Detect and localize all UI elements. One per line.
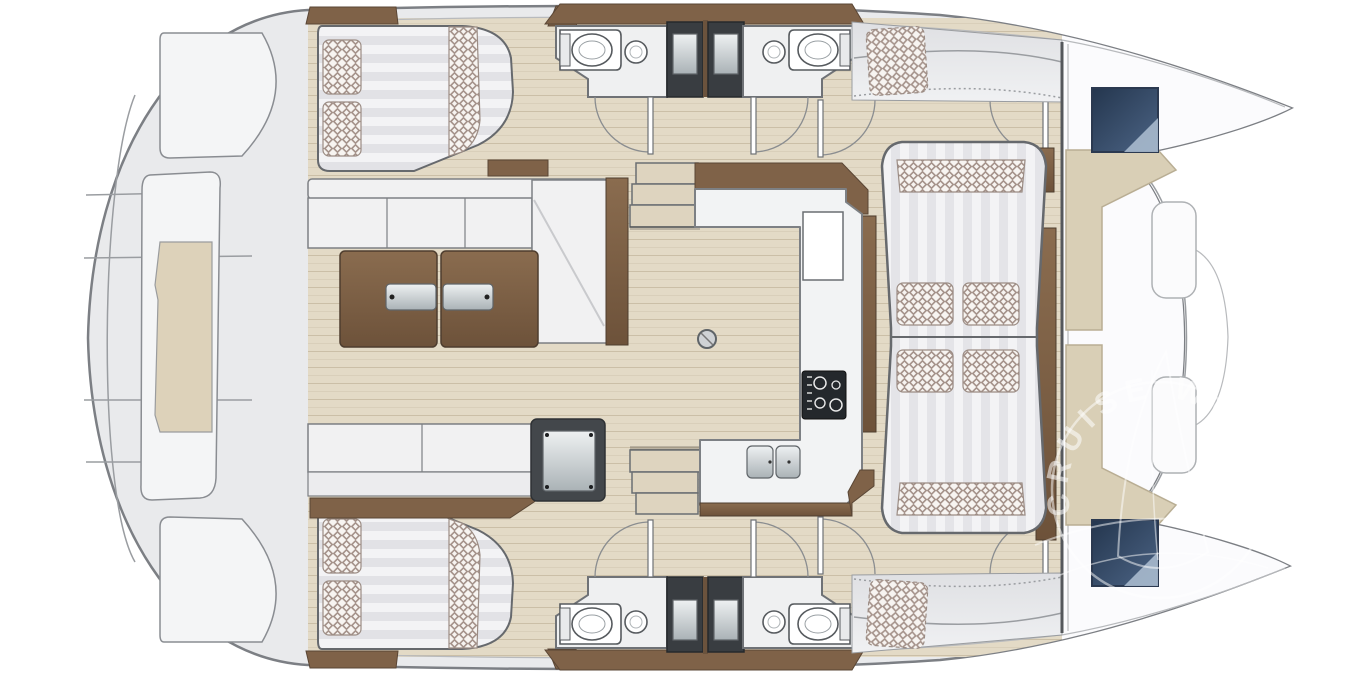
toilet-tank [840,34,850,66]
door-leaf [751,520,756,577]
galley-wall-wood-bottom [700,503,852,516]
door-leaf [818,517,823,574]
door-leaf [648,520,653,577]
bench-seat [308,424,540,472]
cabin-wall-wood [306,651,398,668]
fridge-hinge [545,485,549,489]
bench-base [308,472,540,496]
fridge-hinge [589,485,593,489]
lounge-checkered-band [897,483,1025,515]
pillow [323,40,361,94]
shower-door [673,34,697,74]
helm-pad-checkered [866,26,928,96]
port-heads [545,4,864,97]
bed-checkered-band [449,519,480,648]
handle-pin [390,295,395,300]
bed-checkered-band [449,27,480,156]
stairs-starboard [630,448,700,514]
toilet-tank [560,34,570,66]
bench-wall-wood [310,498,540,518]
toilet-bowl [798,34,838,66]
lounge-cushion [897,283,953,325]
door-leaf [818,100,823,157]
lounge-checkered-band [897,160,1025,192]
fridge-hinge [589,433,593,437]
door-leaf [648,97,653,154]
saloon-wall-wood [488,160,548,176]
toilet-bowl [572,608,612,640]
shower-door [673,600,697,640]
washbasin [625,41,647,63]
step [632,472,698,493]
washbasin [763,611,785,633]
step [632,184,698,205]
forward-lounge [882,142,1056,540]
pillow [323,519,361,573]
lounge-cushion [897,350,953,392]
faucet-dot [768,460,771,463]
door-leaf [751,97,756,154]
toilet-bowl [798,608,838,640]
step [636,493,698,514]
handle-pin [485,295,490,300]
fridge-hinge [545,433,549,437]
lounge-cushion [963,283,1019,325]
toilet-tank [560,608,570,640]
shower-door [714,34,738,74]
forward-seat-shell [1152,202,1196,298]
toilet-bowl [572,34,612,66]
stairs-port [630,163,700,228]
toilet-tank [840,608,850,640]
washbasin [763,41,785,63]
faucet-dot [787,460,790,463]
pillow [323,581,361,635]
sofa-chaise [532,180,608,343]
shower-door [714,600,738,640]
step [630,205,700,227]
saloon [308,160,628,518]
fridge-door [543,431,595,491]
cabin-wall-wood [306,7,398,24]
stair-wall-wood [606,178,628,345]
helm-pad-checkered [866,579,928,649]
floor-plan-svg: CRUISE WORLD [0,0,1350,675]
starboard-heads [545,577,864,670]
washbasin [625,611,647,633]
transom-bench-cushion [155,242,212,432]
lounge-cushion [963,350,1019,392]
step [636,163,698,184]
boat-floor-plan: CRUISE WORLD [0,0,1350,675]
pillow [323,102,361,156]
step [630,450,700,472]
counter-inset [803,212,843,280]
sofa-seat [308,198,532,248]
